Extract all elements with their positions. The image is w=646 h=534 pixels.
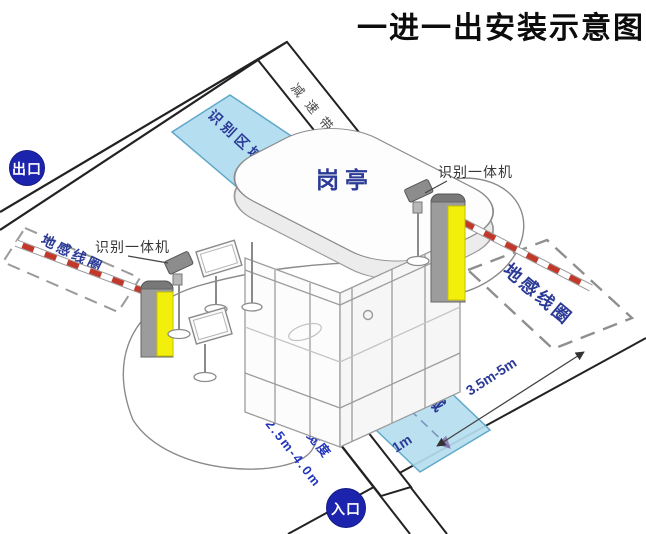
display-sign-upper (196, 240, 242, 277)
loop-distance-label: 3.5m-5m (463, 354, 519, 398)
entrance-barrier-panel (448, 206, 465, 300)
diagram-canvas: 减速带 识别区域 减速带 车道宽度 2.5m-4.0m 识别区域 1m 地感线圈… (0, 0, 646, 534)
booth-label: 岗亭 (316, 167, 374, 193)
exit-reader-callout: 识别一体机 (95, 239, 170, 263)
spare-pole-base (242, 303, 262, 311)
exit-reader-label: 识别一体机 (95, 239, 170, 255)
exit-badge-text: 出口 (12, 161, 42, 177)
entrance-reader-label: 识别一体机 (438, 164, 513, 180)
installation-diagram: 减速带 识别区域 减速带 车道宽度 2.5m-4.0m 识别区域 1m 地感线圈… (0, 0, 646, 534)
entrance-badge: 入口 (327, 489, 366, 528)
exit-badge: 出口 (10, 151, 45, 186)
exit-barrier-assembly: 识别一体机 (16, 239, 193, 357)
exit-barrier-panel (157, 292, 173, 356)
sign-lower-base (194, 373, 216, 382)
diagram-title: 一进一出安装示意图 (357, 11, 645, 45)
entrance-badge-text: 入口 (331, 501, 361, 517)
exit-reader-leader (128, 256, 168, 263)
ground-loop-entrance-label: 地感线圈 (499, 259, 577, 329)
